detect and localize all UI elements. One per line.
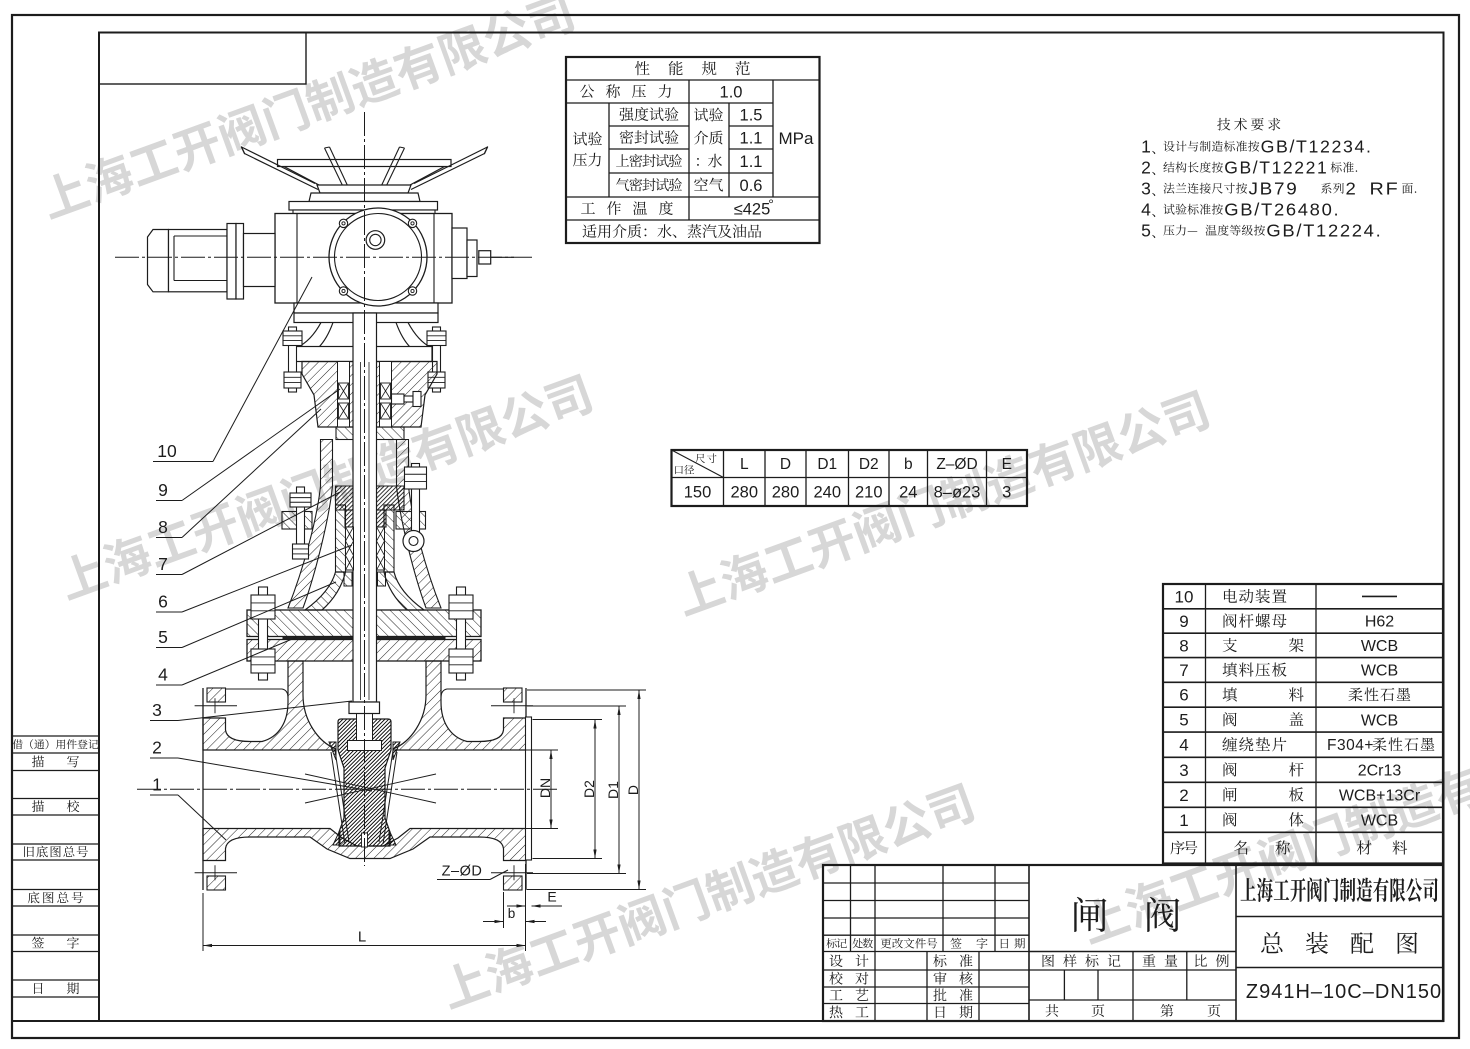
- svg-text:1.1: 1.1: [740, 153, 763, 171]
- svg-text:WCB: WCB: [1361, 812, 1398, 829]
- svg-text:1.1: 1.1: [740, 129, 763, 147]
- svg-text:210: 210: [855, 483, 883, 501]
- svg-text:Z–ØD: Z–ØD: [936, 456, 977, 473]
- svg-text:1.5: 1.5: [740, 106, 763, 124]
- svg-text:4: 4: [1141, 200, 1151, 220]
- svg-text:WCB: WCB: [1361, 663, 1398, 680]
- svg-text:2: 2: [1346, 179, 1358, 199]
- svg-text:≤425: ≤425: [734, 200, 771, 218]
- svg-text:4: 4: [1179, 736, 1188, 755]
- svg-text:°: °: [768, 196, 774, 212]
- svg-text:1: 1: [152, 775, 162, 795]
- svg-text:WCB: WCB: [1361, 638, 1398, 655]
- svg-text:RF: RF: [1370, 179, 1400, 199]
- svg-text:L: L: [740, 456, 749, 473]
- svg-text:5: 5: [1179, 711, 1188, 730]
- svg-text:150: 150: [684, 483, 712, 501]
- svg-text:24: 24: [899, 483, 917, 501]
- svg-text:D1: D1: [817, 456, 837, 473]
- svg-text:E: E: [547, 888, 556, 904]
- svg-text:2Cr13: 2Cr13: [1358, 762, 1402, 779]
- svg-text:Z941H–10C–DN150: Z941H–10C–DN150: [1246, 981, 1442, 1003]
- svg-text:2: 2: [152, 738, 162, 758]
- svg-text:F304+: F304+: [1327, 737, 1374, 754]
- svg-text:9: 9: [1179, 612, 1188, 631]
- svg-text:L: L: [358, 928, 366, 945]
- svg-text:7: 7: [1179, 661, 1188, 680]
- svg-text:GB/T12224.: GB/T12224.: [1266, 221, 1382, 241]
- svg-text:D: D: [625, 785, 641, 795]
- svg-text:H62: H62: [1365, 614, 1394, 631]
- svg-text:D2: D2: [581, 780, 597, 798]
- svg-text:5: 5: [1141, 221, 1151, 241]
- svg-text:6: 6: [158, 592, 168, 612]
- svg-text:2: 2: [1141, 158, 1151, 178]
- svg-text:0.6: 0.6: [740, 177, 763, 195]
- svg-text:MPa: MPa: [779, 129, 815, 148]
- svg-text:8–ø23: 8–ø23: [934, 483, 981, 501]
- svg-text:280: 280: [772, 483, 800, 501]
- svg-text:GB/T12221: GB/T12221: [1224, 158, 1328, 178]
- svg-text:280: 280: [730, 483, 758, 501]
- svg-text:5: 5: [158, 627, 168, 647]
- svg-text:E: E: [1002, 456, 1012, 473]
- svg-text:3: 3: [152, 700, 162, 720]
- svg-text:240: 240: [813, 483, 841, 501]
- svg-text:10: 10: [1175, 587, 1194, 606]
- svg-text:D2: D2: [859, 456, 879, 473]
- svg-text:WCB: WCB: [1361, 712, 1398, 729]
- svg-text:b: b: [508, 906, 516, 921]
- svg-text:DN: DN: [537, 778, 553, 798]
- svg-text:8: 8: [158, 517, 168, 537]
- svg-text:D1: D1: [605, 781, 621, 799]
- svg-text:GB/T26480.: GB/T26480.: [1224, 200, 1340, 220]
- svg-text:7: 7: [158, 554, 168, 574]
- svg-text:1: 1: [1179, 811, 1188, 830]
- svg-text:3: 3: [1179, 761, 1188, 780]
- svg-text:8: 8: [1179, 636, 1188, 655]
- svg-text:Z–ØD: Z–ØD: [442, 864, 483, 880]
- svg-text:2: 2: [1179, 786, 1188, 805]
- svg-text:6: 6: [1179, 686, 1188, 705]
- svg-text:1.0: 1.0: [720, 83, 743, 101]
- svg-text:10: 10: [157, 441, 177, 461]
- svg-text:4: 4: [158, 665, 168, 685]
- svg-text:1: 1: [1141, 137, 1151, 157]
- svg-text:9: 9: [158, 480, 168, 500]
- svg-text:b: b: [904, 456, 913, 473]
- svg-text:3: 3: [1002, 483, 1011, 501]
- svg-text:D: D: [780, 456, 791, 473]
- svg-text:JB79: JB79: [1249, 179, 1299, 199]
- svg-text:GB/T12234.: GB/T12234.: [1261, 137, 1373, 157]
- svg-text:WCB+13Cr: WCB+13Cr: [1339, 787, 1421, 804]
- svg-text:3: 3: [1141, 179, 1151, 199]
